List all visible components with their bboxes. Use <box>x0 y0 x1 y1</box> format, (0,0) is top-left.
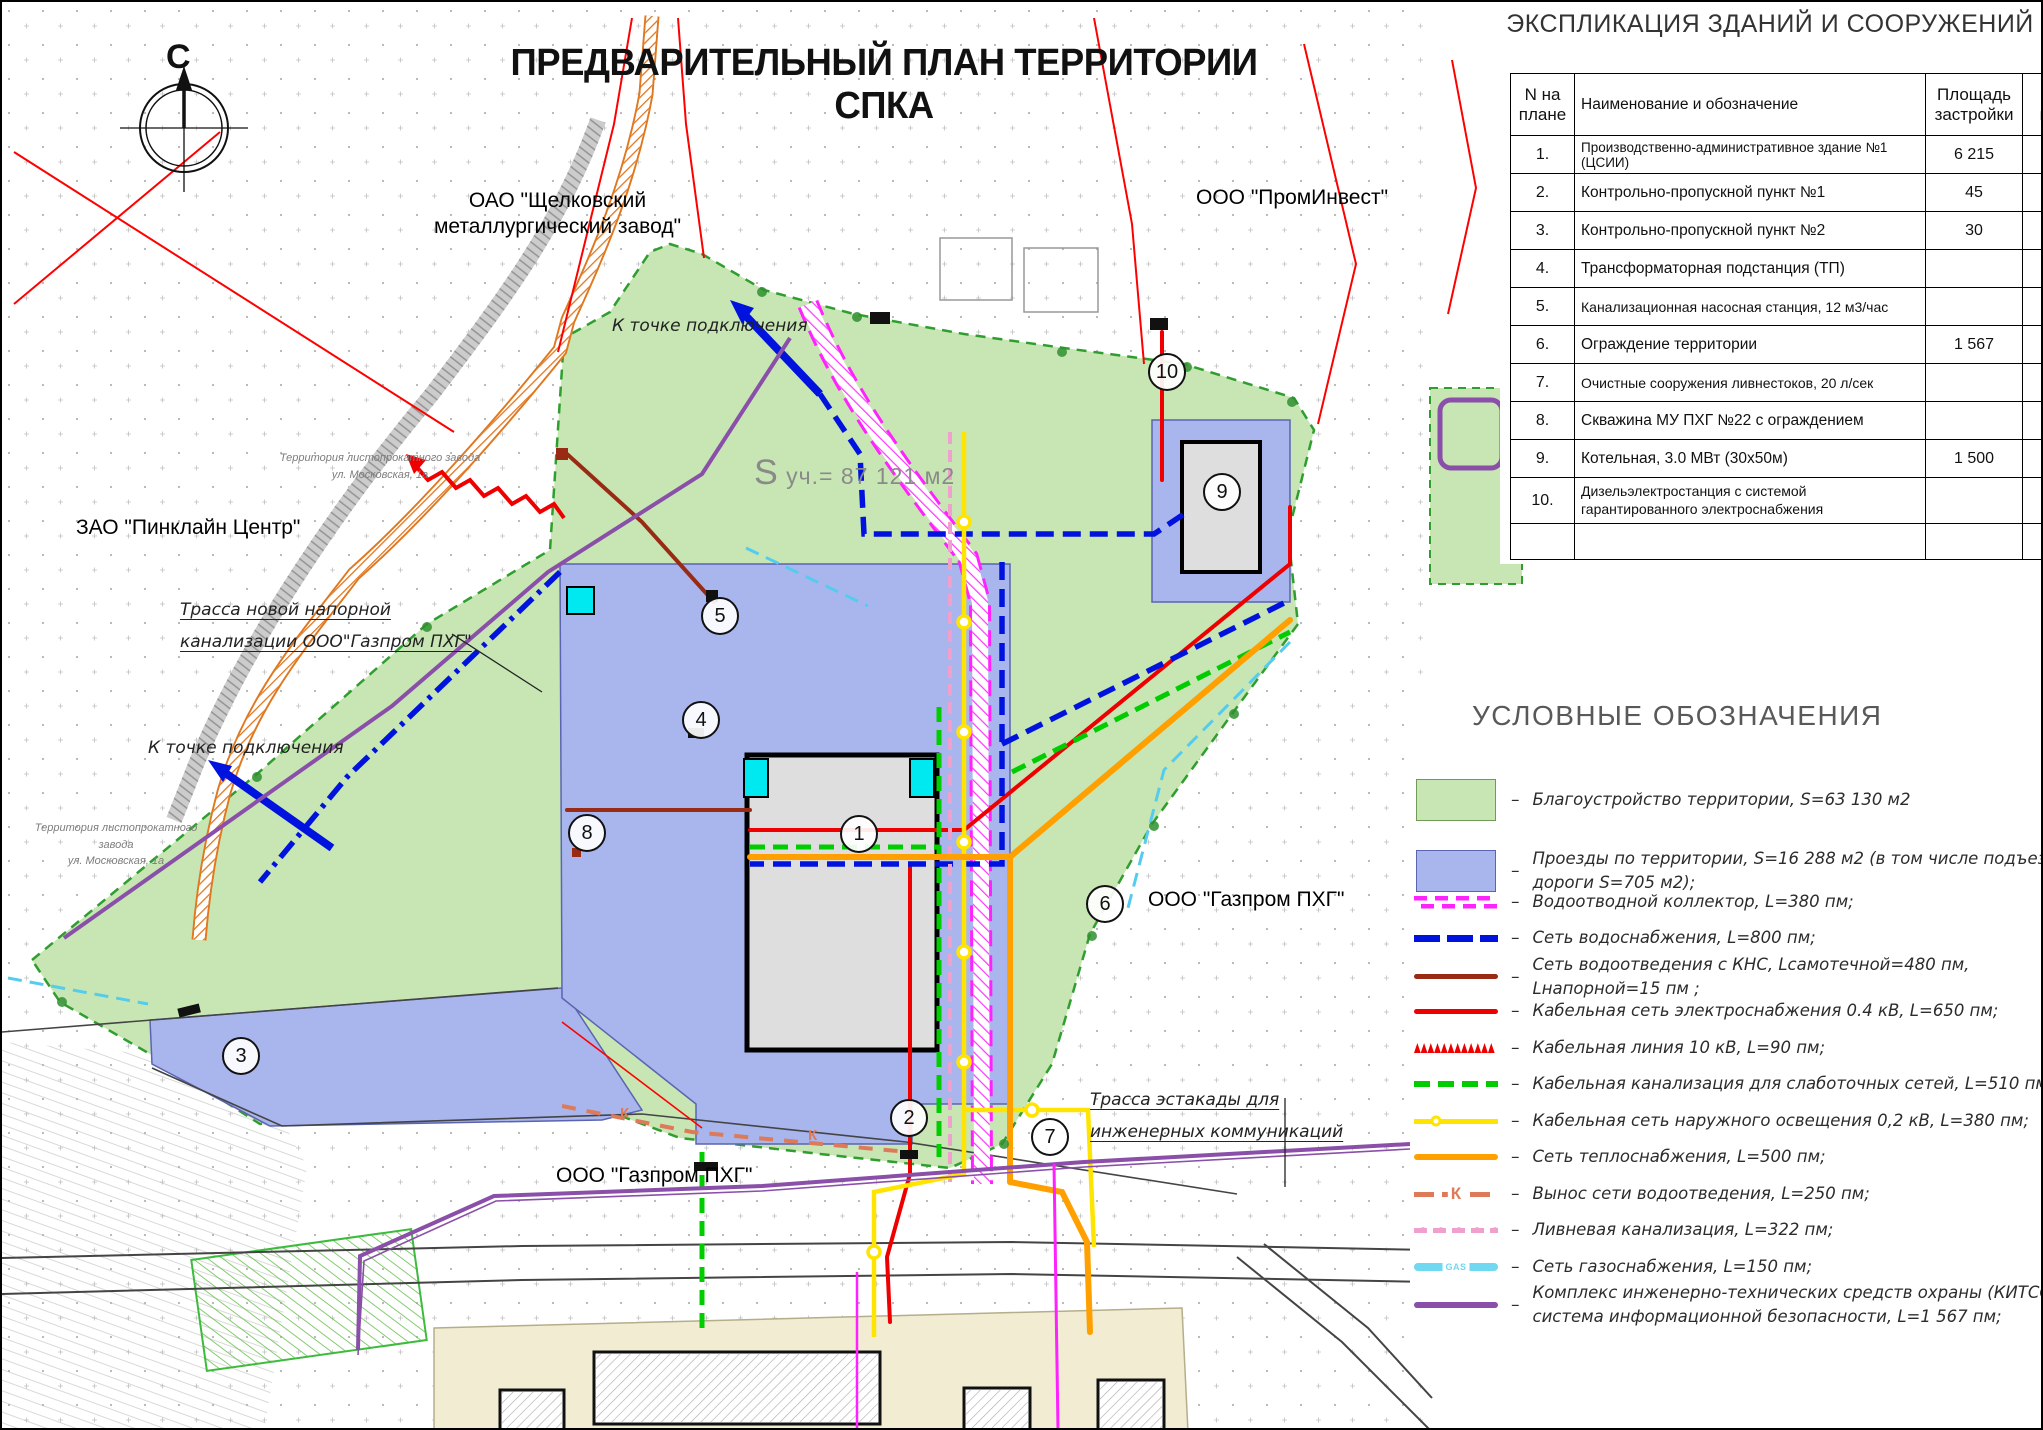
cell-name: Очистные сооружения ливнестоков, 20 л/се… <box>1575 364 1926 402</box>
legend-dash: – <box>1511 1074 1520 1094</box>
table-row: 6.Ограждение территории1 567пм <box>1511 326 2043 364</box>
table-row: 3.Контрольно-пропускной пункт №230м2 <box>1511 212 2043 250</box>
plan-marker-2: 2 <box>890 1099 928 1137</box>
table-row: 8.Скважина МУ ПХГ №22 с ограждением <box>1511 402 2043 440</box>
cell-unit: м2 <box>2023 136 2043 174</box>
table-row: 5.Канализационная насосная станция, 12 м… <box>1511 288 2043 326</box>
plan-marker-9: 9 <box>1203 473 1241 511</box>
label-gazprom-phg-right: ООО "Газпром ПХГ" <box>1148 888 1345 912</box>
label-site-area: S уч.= 87 121 м2 <box>754 452 955 493</box>
plan-marker-3: 3 <box>222 1037 260 1075</box>
swatch-letter: К <box>1448 1184 1464 1204</box>
cell-area <box>1926 288 2023 326</box>
legend-label: Сеть водоснабжения, L=800 пм; <box>1533 926 2043 950</box>
legend-label: Кабельная сеть электроснабжения 0.4 кВ, … <box>1533 999 2043 1023</box>
legend-dash: – <box>1511 1257 1520 1277</box>
table-row: 10.Дизельэлектростанция с системой гаран… <box>1511 478 2043 524</box>
cell-num <box>1511 524 1575 560</box>
label-new-sewer-route: Трасса новой напорной канализации ООО"Га… <box>180 594 472 659</box>
cell-name: Производственно-административное здание … <box>1575 136 1926 174</box>
page-title: ПРЕДВАРИТЕЛЬНЫЙ ПЛАН ТЕРРИТОРИИ СПКА <box>481 42 1287 128</box>
col-header-unit: Ед. изм. <box>2023 74 2043 136</box>
cell-unit <box>2023 288 2043 326</box>
cell-num: 5. <box>1511 288 1575 326</box>
svg-text:К: К <box>808 1127 818 1144</box>
legend-dash: – <box>1511 861 1520 881</box>
cell-unit: пм <box>2023 326 2043 364</box>
legend-dash: – <box>1511 1111 1520 1131</box>
green-area-swatch <box>1414 778 1498 822</box>
label-connection-point-top: К точке подключения <box>612 316 808 336</box>
cell-area <box>1926 364 2023 402</box>
cell-name: Скважина МУ ПХГ №22 с ограждением <box>1575 402 1926 440</box>
label-pinkline-center: ЗАО "Пинклайн Центр" <box>76 516 300 540</box>
legend-label: Водоотводной коллектор, L=380 пм; <box>1533 890 2043 914</box>
legend-dash: – <box>1511 1184 1520 1204</box>
cell-name: Дизельэлектростанция с системой гарантир… <box>1575 478 1926 524</box>
legend-item-green-area: – Благоустройство территории, S=63 130 м… <box>1414 778 2043 822</box>
cell-area <box>1926 402 2023 440</box>
cell-area: 6 215 <box>1926 136 2023 174</box>
legend-dash: – <box>1511 1295 1520 1315</box>
legend-dash: – <box>1511 928 1520 948</box>
plan-marker-5: 5 <box>701 597 739 635</box>
table-row: 1.Производственно-административное здани… <box>1511 136 2043 174</box>
legend-dash: – <box>1511 1001 1520 1021</box>
legend-dash: – <box>1511 1038 1520 1058</box>
svg-text:К: К <box>620 1105 630 1122</box>
plan-marker-8: 8 <box>568 814 606 852</box>
table-row: 4.Трансформаторная подстанция (ТП) <box>1511 250 2043 288</box>
cell-name: Трансформаторная подстанция (ТП) <box>1575 250 1926 288</box>
explication-heading: ЭКСПЛИКАЦИЯ ЗДАНИЙ И СООРУЖЕНИЙ <box>1502 10 2038 39</box>
legend-dash: – <box>1511 1220 1520 1240</box>
cell-area: 45 <box>1926 174 2023 212</box>
bottom-buildings-zone <box>434 1308 1188 1430</box>
legend-label: Ливневая канализация, L=322 пм; <box>1533 1218 2043 1242</box>
table-row: 9.Котельная, 3.0 МВт (30х50м)1 500м2 <box>1511 440 2043 478</box>
cell-unit: м2 <box>2023 440 2043 478</box>
col-header-area: Площадь застройки <box>1926 74 2023 136</box>
legend-label: Вынос сети водоотведения, L=250 пм; <box>1533 1182 2043 1206</box>
cell-unit <box>2023 250 2043 288</box>
table-header-row: N на плане Наименование и обозначение Пл… <box>1511 74 2043 136</box>
cell-num: 1. <box>1511 136 1575 174</box>
cell-name: Контрольно-пропускной пункт №2 <box>1575 212 1926 250</box>
site-plan-sheet: К К С ПРЕДВАРИТЕЛЬНЫЙ ПЛАН ТЕ <box>0 0 2043 1430</box>
label-territory-rolling-plant-1: Территория листопрокатного завода ул. Мо… <box>270 450 490 483</box>
plan-marker-6: 6 <box>1086 885 1124 923</box>
legend-dash: – <box>1511 790 1520 810</box>
table-row: 7.Очистные сооружения ливнестоков, 20 л/… <box>1511 364 2043 402</box>
label-schelkovsky-plant: ОАО "Щелковский металлургический завод" <box>400 188 715 241</box>
explication-table: N на плане Наименование и обозначение Пл… <box>1510 73 2043 560</box>
legend-heading: УСЛОВНЫЕ ОБОЗНАЧЕНИЯ <box>1472 700 1883 732</box>
cell-area <box>1926 524 2023 560</box>
legend-label: Кабельная канализация для слаботочных се… <box>1533 1072 2043 1096</box>
cell-name <box>1575 524 1926 560</box>
cell-num: 2. <box>1511 174 1575 212</box>
cell-num: 8. <box>1511 402 1575 440</box>
legend-item-kitso: – Комплекс инженерно-технических средств… <box>1414 1281 2043 1329</box>
table-row-empty <box>1511 524 2043 560</box>
label-gazprom-phg-bottom: ООО "Газпром ПХГ" <box>556 1164 753 1188</box>
plan-marker-7: 7 <box>1031 1118 1069 1156</box>
legend-dash: – <box>1511 967 1520 987</box>
cell-area <box>1926 250 2023 288</box>
cell-area: 30 <box>1926 212 2023 250</box>
kitso-swatch <box>1414 1283 1498 1327</box>
label-territory-rolling-plant-2: Территория листопрокатного завода ул. Мо… <box>16 820 216 870</box>
legend-label: Комплекс инженерно-технических средств о… <box>1533 1281 2043 1329</box>
legend-dash: – <box>1511 892 1520 912</box>
legend-label: Благоустройство территории, S=63 130 м2 <box>1533 788 2043 812</box>
cell-name: Ограждение территории <box>1575 326 1926 364</box>
label-prominvest: ООО "ПромИнвест" <box>1196 186 1388 210</box>
table-row: 2.Контрольно-пропускной пункт №145м2 <box>1511 174 2043 212</box>
plan-marker-4: 4 <box>682 701 720 739</box>
cell-num: 6. <box>1511 326 1575 364</box>
cell-area <box>1926 478 2023 524</box>
cell-name: Канализационная насосная станция, 12 м3/… <box>1575 288 1926 326</box>
legend-label: Кабельная сеть наружного освещения 0,2 к… <box>1533 1109 2043 1133</box>
compass-north-label: С <box>166 38 191 77</box>
cell-num: 3. <box>1511 212 1575 250</box>
col-header-num: N на плане <box>1511 74 1575 136</box>
cell-unit <box>2023 364 2043 402</box>
cell-area: 1 567 <box>1926 326 2023 364</box>
col-header-name: Наименование и обозначение <box>1575 74 1926 136</box>
cell-num: 10. <box>1511 478 1575 524</box>
cell-unit <box>2023 524 2043 560</box>
cell-name: Котельная, 3.0 МВт (30х50м) <box>1575 440 1926 478</box>
cell-num: 4. <box>1511 250 1575 288</box>
cell-unit <box>2023 478 2043 524</box>
label-utility-rack-route: Трасса эстакады для инженерных коммуника… <box>1090 1084 1343 1149</box>
legend-dash: – <box>1511 1147 1520 1167</box>
cell-num: 7. <box>1511 364 1575 402</box>
cell-name: Контрольно-пропускной пункт №1 <box>1575 174 1926 212</box>
label-connection-point-left: К точке подключения <box>148 738 344 758</box>
cell-num: 9. <box>1511 440 1575 478</box>
plan-marker-1: 1 <box>840 815 878 853</box>
plan-marker-10: 10 <box>1148 353 1186 391</box>
cell-area: 1 500 <box>1926 440 2023 478</box>
cell-unit: м2 <box>2023 212 2043 250</box>
legend-label: Сеть теплоснабжения, L=500 пм; <box>1533 1145 2043 1169</box>
cell-unit <box>2023 402 2043 440</box>
legend-label: Сеть газоснабжения, L=150 пм; <box>1533 1255 2043 1279</box>
swatch-gas-label: GAS <box>1442 1262 1469 1272</box>
cell-unit: м2 <box>2023 174 2043 212</box>
legend-label: Кабельная линия 10 кВ, L=90 пм; <box>1533 1036 2043 1060</box>
